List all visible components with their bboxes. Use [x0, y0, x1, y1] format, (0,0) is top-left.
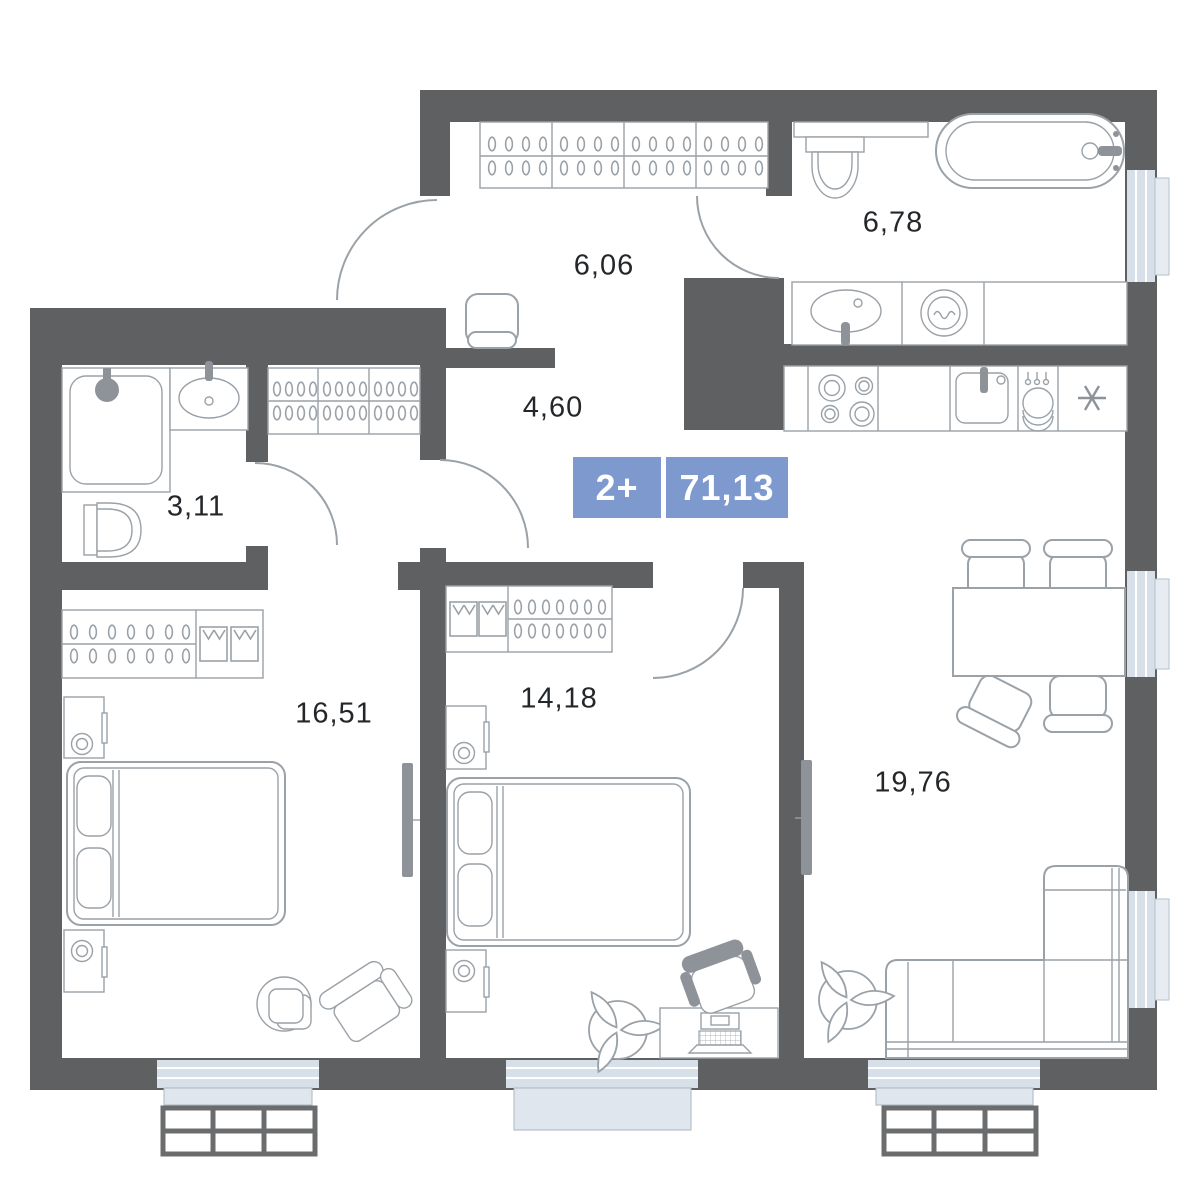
- door-bedroom-second: [653, 588, 743, 678]
- wardrobe-bedroom-main: [62, 610, 263, 678]
- nightstand: [64, 930, 107, 992]
- badge-total-area: 71,13: [666, 457, 788, 518]
- room-area-hallway-entry: 6,06: [574, 250, 634, 283]
- door-bathroom-small: [255, 463, 337, 545]
- hall-pouf: [466, 294, 518, 348]
- bathroom-large-fixtures: [792, 114, 1127, 346]
- wc-counter-sink: [170, 361, 248, 430]
- wall-living-west: [779, 562, 804, 1058]
- wall-bedroom-divider: [420, 562, 446, 1058]
- toilet: [806, 137, 864, 198]
- shower: [62, 368, 170, 492]
- window-living-south: [868, 1060, 1040, 1105]
- wall-bath-kitchen: [784, 344, 1127, 366]
- door-bedroom-main: [440, 460, 528, 548]
- bathtub: [936, 114, 1124, 188]
- nightstand: [446, 706, 489, 769]
- wall-bedroom2-top-right: [743, 562, 784, 588]
- window-bedroom-second: [506, 1060, 698, 1130]
- dining-table: [953, 588, 1125, 676]
- window-living-east-top: [1127, 571, 1169, 677]
- wall-wc-right-top: [246, 342, 268, 462]
- bedroom-second-furniture: [446, 586, 778, 1074]
- room-area-bathroom-small: 3,11: [167, 491, 225, 524]
- room-area-bathroom-large: 6,78: [863, 207, 923, 240]
- nightstand: [446, 950, 489, 1012]
- wall-entrance-side: [420, 90, 450, 196]
- kitchen-counter: [784, 366, 1127, 431]
- wall-shaft: [684, 278, 784, 430]
- bathroom-small-fixtures: [62, 361, 248, 557]
- bedroom-main-furniture: [62, 610, 420, 1048]
- wall-topleft: [30, 308, 446, 365]
- wall-bedroom2-top-left: [446, 562, 653, 588]
- wardrobe-bedroom-second: [446, 586, 612, 652]
- plant-living: [817, 958, 894, 1045]
- wall-left: [30, 308, 62, 1090]
- wall-bedroom1-top: [30, 562, 260, 590]
- armchair: [316, 954, 416, 1048]
- tv-bedroom-main: [402, 763, 420, 877]
- room-area-living-kitchen: 19,76: [874, 767, 952, 800]
- wall-hall-stub: [443, 348, 555, 368]
- window-bathroom: [1127, 170, 1169, 282]
- wall-wc-right-bottom: [246, 546, 268, 590]
- railing-left: [163, 1108, 315, 1154]
- toilet-small: [84, 503, 141, 557]
- bed-main: [67, 762, 285, 925]
- window-bedroom-main: [157, 1060, 319, 1105]
- nightstand: [64, 697, 107, 758]
- room-area-hallway-inner: 4,60: [523, 392, 583, 425]
- living-room-furniture: [795, 540, 1128, 1058]
- apartment-badge: 2+ 71,13: [573, 457, 788, 518]
- dining-set: [953, 540, 1125, 750]
- bed-second: [447, 778, 690, 946]
- railing-right: [884, 1108, 1036, 1154]
- bath-counter: [792, 282, 1127, 346]
- room-area-bedroom-main: 16,51: [295, 698, 373, 731]
- room-area-bedroom-second: 14,18: [520, 683, 598, 716]
- wall-nook-east-top: [420, 308, 446, 460]
- office-chair: [674, 935, 767, 1019]
- sofa: [886, 866, 1128, 1058]
- floorplan-canvas: 6,06 6,78 4,60 3,11 16,51 14,18 19,76 2+…: [0, 0, 1200, 1200]
- round-chair: [257, 977, 311, 1031]
- window-living-east-bottom: [1127, 891, 1169, 1008]
- floorplan-drawing: [0, 0, 1200, 1200]
- wall-bath-left: [766, 118, 792, 196]
- wall-nook-corner: [398, 562, 424, 590]
- hall-wardrobe: [480, 122, 768, 188]
- badge-rooms-count: 2+: [573, 457, 661, 518]
- door-entrance: [337, 200, 437, 300]
- desk: [660, 1008, 778, 1058]
- nook-wardrobe: [268, 368, 420, 434]
- door-bathroom-large: [697, 196, 779, 278]
- bath-shelf: [794, 122, 928, 137]
